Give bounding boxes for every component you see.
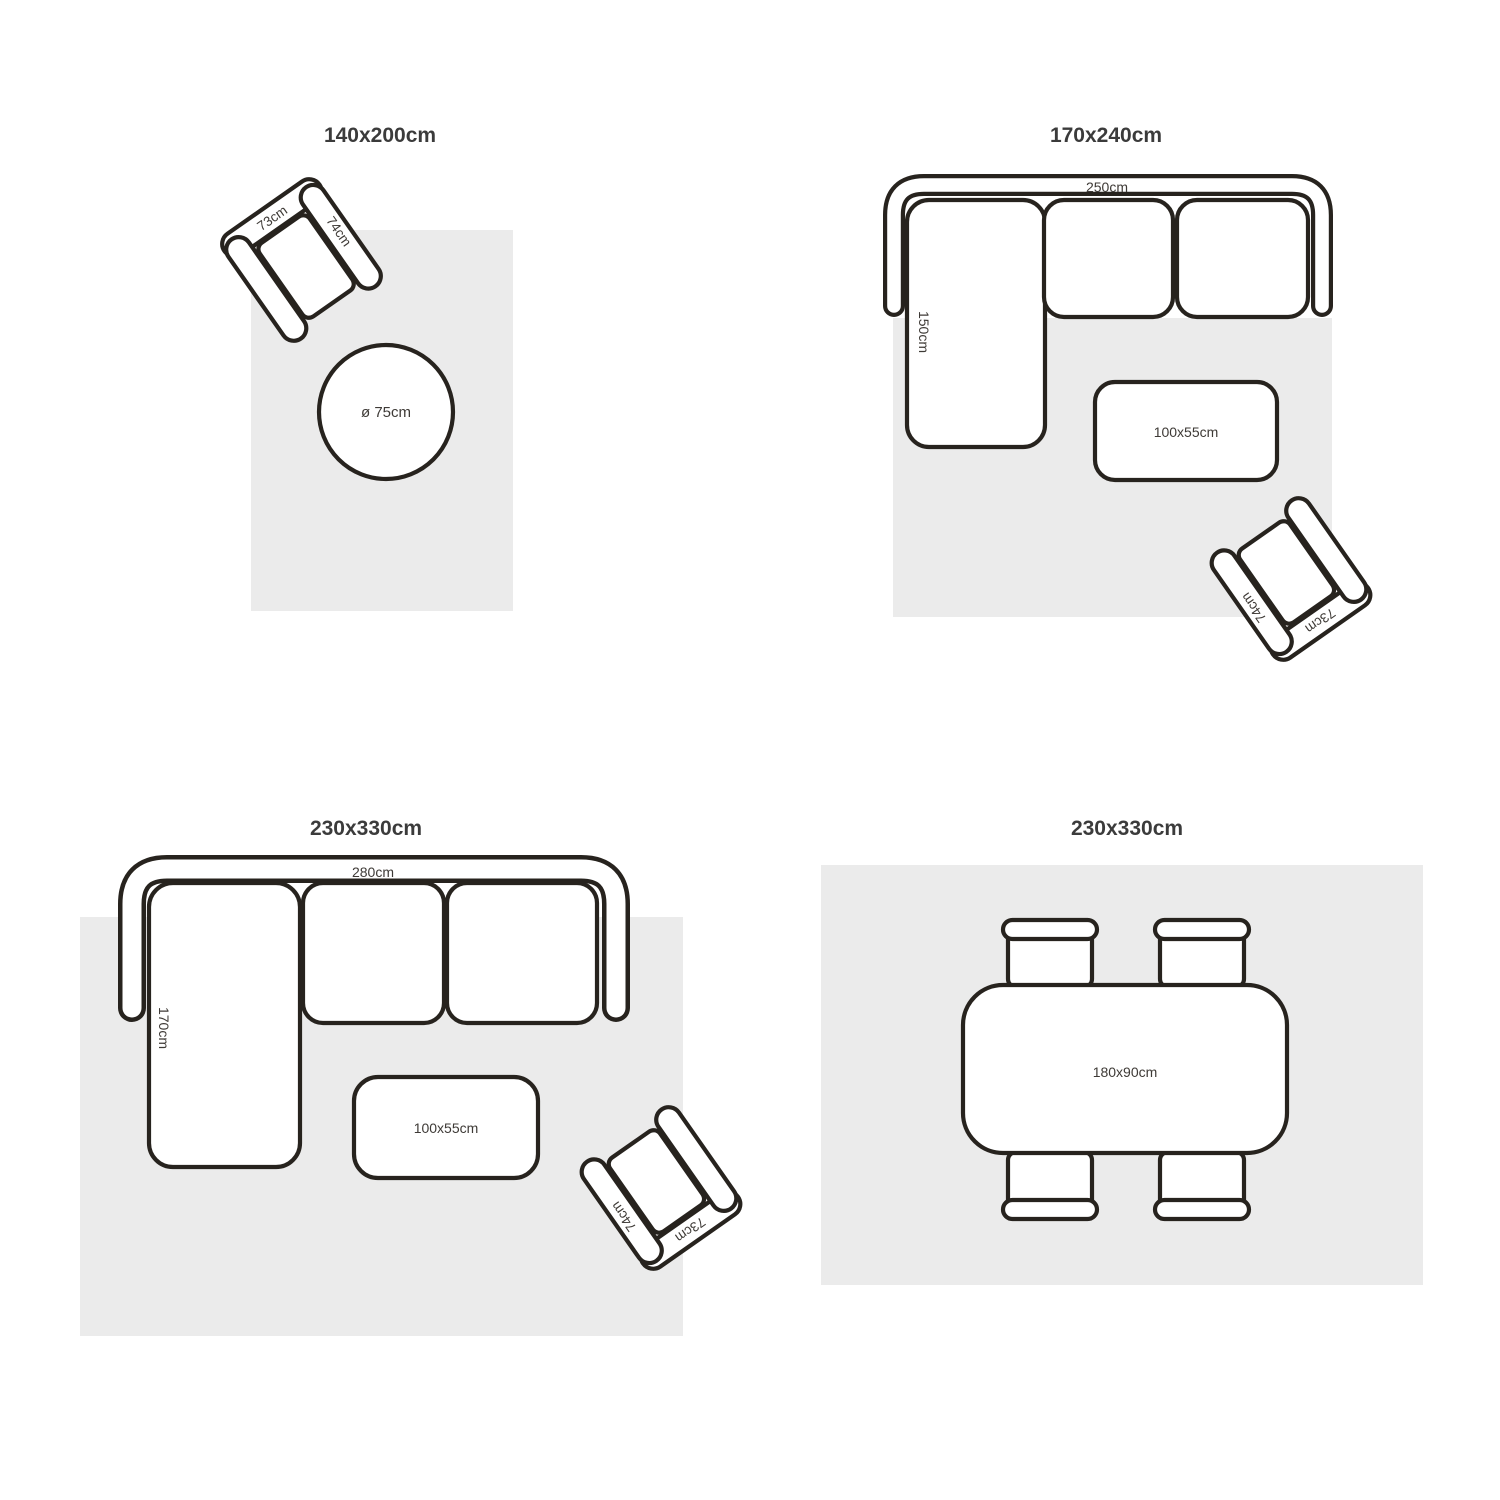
layout-230x330-sofa-title: 230x330cm bbox=[310, 817, 422, 840]
rug-size-guide-page: 73cm 74cm 140x200cm ø 75cm 170x240cm bbox=[0, 0, 1500, 1500]
sofa-cushion-2-q3 bbox=[447, 883, 597, 1023]
coffee-table-label-q2: 100x55cm bbox=[1154, 424, 1219, 440]
round-side-table-label: ø 75cm bbox=[361, 404, 411, 421]
rug-size-guide-diagram: 73cm 74cm 140x200cm ø 75cm 170x240cm bbox=[0, 0, 1500, 1500]
layout-170x240-title: 170x240cm bbox=[1050, 124, 1162, 147]
sofa-cushion-1-q3 bbox=[303, 883, 444, 1023]
dining-chair-bottom-left bbox=[1003, 1152, 1097, 1219]
layout-230x330-dining: 230x330cm 180x90cm bbox=[821, 817, 1423, 1285]
coffee-table-label-q3: 100x55cm bbox=[414, 1120, 479, 1136]
layout-170x240: 170x240cm 250cm 150cm 100x55cm bbox=[893, 124, 1375, 665]
layout-140x200-title: 140x200cm bbox=[324, 124, 436, 147]
dining-chair-top-left bbox=[1003, 920, 1097, 987]
sofa-depth-label-q3: 170cm bbox=[156, 1007, 172, 1049]
sofa-depth-label-q2: 150cm bbox=[916, 311, 932, 353]
layout-230x330-dining-title: 230x330cm bbox=[1071, 817, 1183, 840]
sofa-cushion-1-q2 bbox=[1044, 200, 1173, 317]
sofa-cushion-2-q2 bbox=[1177, 200, 1308, 317]
dining-chair-bottom-right bbox=[1155, 1152, 1249, 1219]
sofa-width-label-q2: 250cm bbox=[1086, 179, 1128, 195]
dining-table-label: 180x90cm bbox=[1093, 1064, 1158, 1080]
sofa-width-label-q3: 280cm bbox=[352, 864, 394, 880]
dining-chair-top-right bbox=[1155, 920, 1249, 987]
